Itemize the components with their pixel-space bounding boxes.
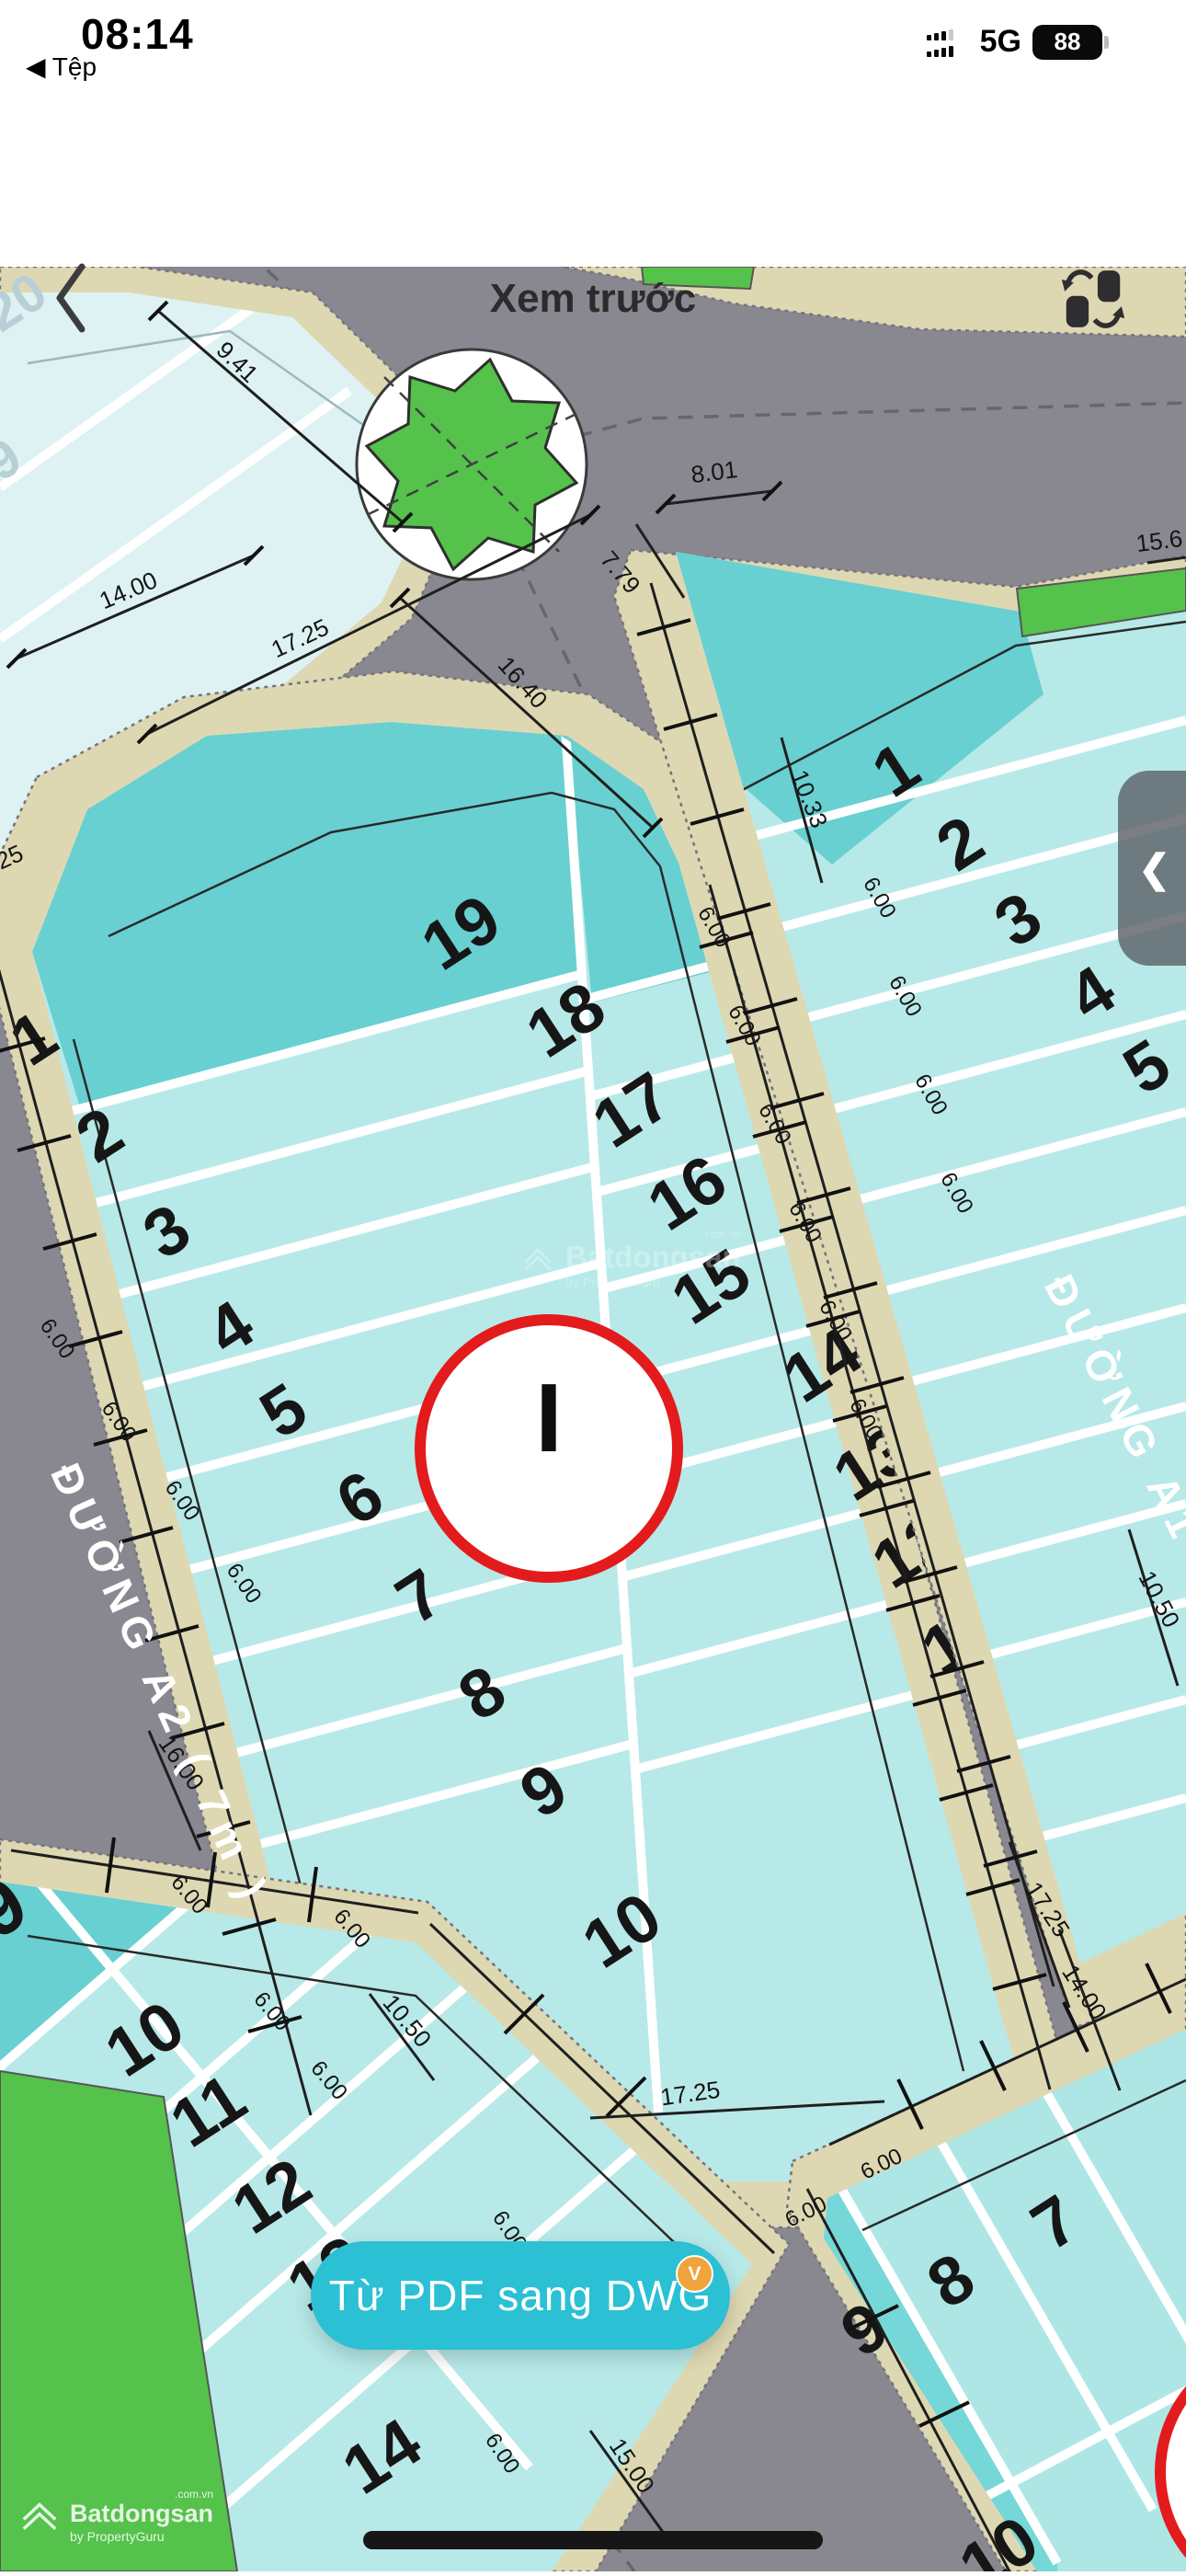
battery-cap [1104, 36, 1109, 49]
cellular-signal-icon [927, 28, 969, 57]
cta-label: Từ PDF sang DWG [329, 2271, 712, 2320]
roundabout-icon [357, 349, 587, 579]
nav-bar: Xem trước [0, 92, 1186, 267]
battery-indicator: 88 [1032, 25, 1109, 60]
status-bar: 08:14 ◀ Tệp 5G 88 [0, 0, 1186, 92]
convert-rotate-button[interactable] [1057, 263, 1129, 335]
block-marker: I [420, 1320, 678, 1577]
back-to-app-indicator[interactable]: ◀ Tệp [26, 52, 97, 82]
clock: 08:14 [81, 9, 194, 59]
status-indicators: 5G 88 [927, 24, 1109, 60]
chevron-left-icon: ❮ [1138, 846, 1170, 891]
page-title: Xem trước [0, 276, 1186, 322]
dim-label: 8.01 [690, 455, 739, 488]
home-indicator[interactable] [363, 2531, 823, 2549]
network-type: 5G [980, 24, 1021, 60]
map-preview[interactable]: 20 9 [0, 267, 1186, 2571]
convert-icon [1057, 263, 1129, 335]
block-marker-label: I [535, 1364, 562, 1472]
site-plan-svg: 20 9 [0, 267, 1186, 2571]
convert-pdf-to-dwg-button[interactable]: Từ PDF sang DWG V [311, 2241, 730, 2350]
collapse-panel-tab[interactable]: ❮ [1118, 771, 1186, 966]
dim-label: 15.6 [1135, 524, 1184, 557]
battery-level: 88 [1032, 25, 1102, 60]
vip-badge: V [676, 2255, 713, 2293]
